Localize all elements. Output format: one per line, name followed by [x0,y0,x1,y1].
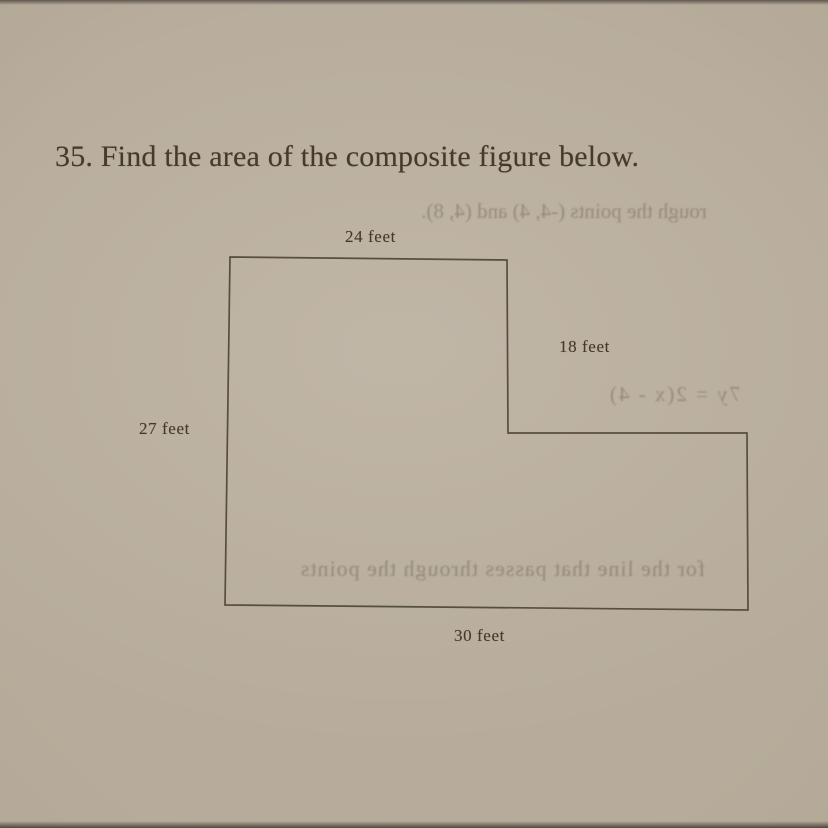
composite-figure [0,0,828,828]
dimension-label-right: 18 feet [559,337,610,357]
photo-top-edge [0,0,828,5]
dimension-label-left: 27 feet [139,419,190,439]
dimension-label-top: 24 feet [345,227,396,247]
figure-outline [225,257,748,610]
dimension-label-bottom: 30 feet [454,626,505,646]
worksheet-photo: rough the points (-4, 4) and (4, 8). 7y … [0,0,828,828]
photo-bottom-edge [0,821,828,828]
